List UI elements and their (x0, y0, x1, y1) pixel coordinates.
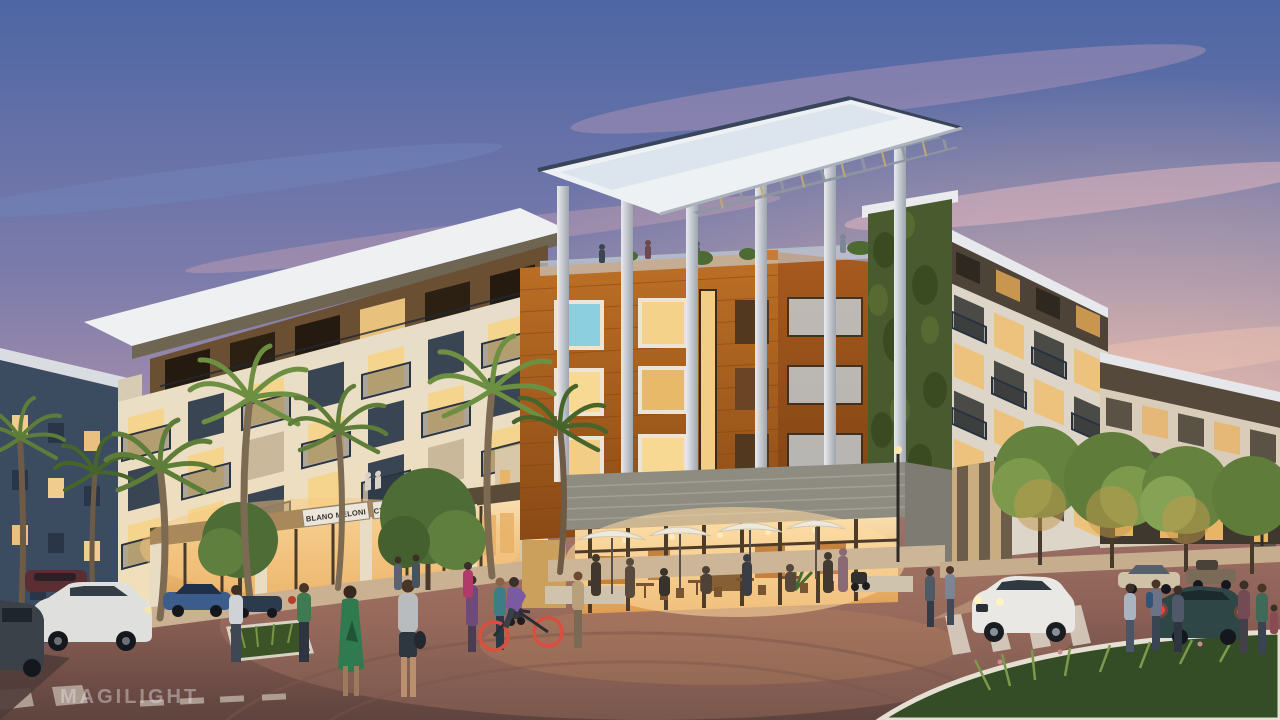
person (229, 585, 243, 662)
tower-windows (556, 290, 769, 480)
child (1270, 605, 1278, 635)
person (463, 562, 473, 598)
watermark: MAGILIGHT (60, 686, 199, 709)
car-gray-sedan-left-edge (0, 600, 44, 677)
living-green-wall (862, 190, 958, 506)
person (412, 555, 420, 589)
scene-canvas: BLANO MELONI CYR GIFT SHOP (0, 0, 1280, 720)
restaurant-podium (522, 462, 952, 617)
person (394, 557, 402, 591)
architectural-rendering: BLANO MELONI CYR GIFT SHOP (0, 0, 1280, 720)
